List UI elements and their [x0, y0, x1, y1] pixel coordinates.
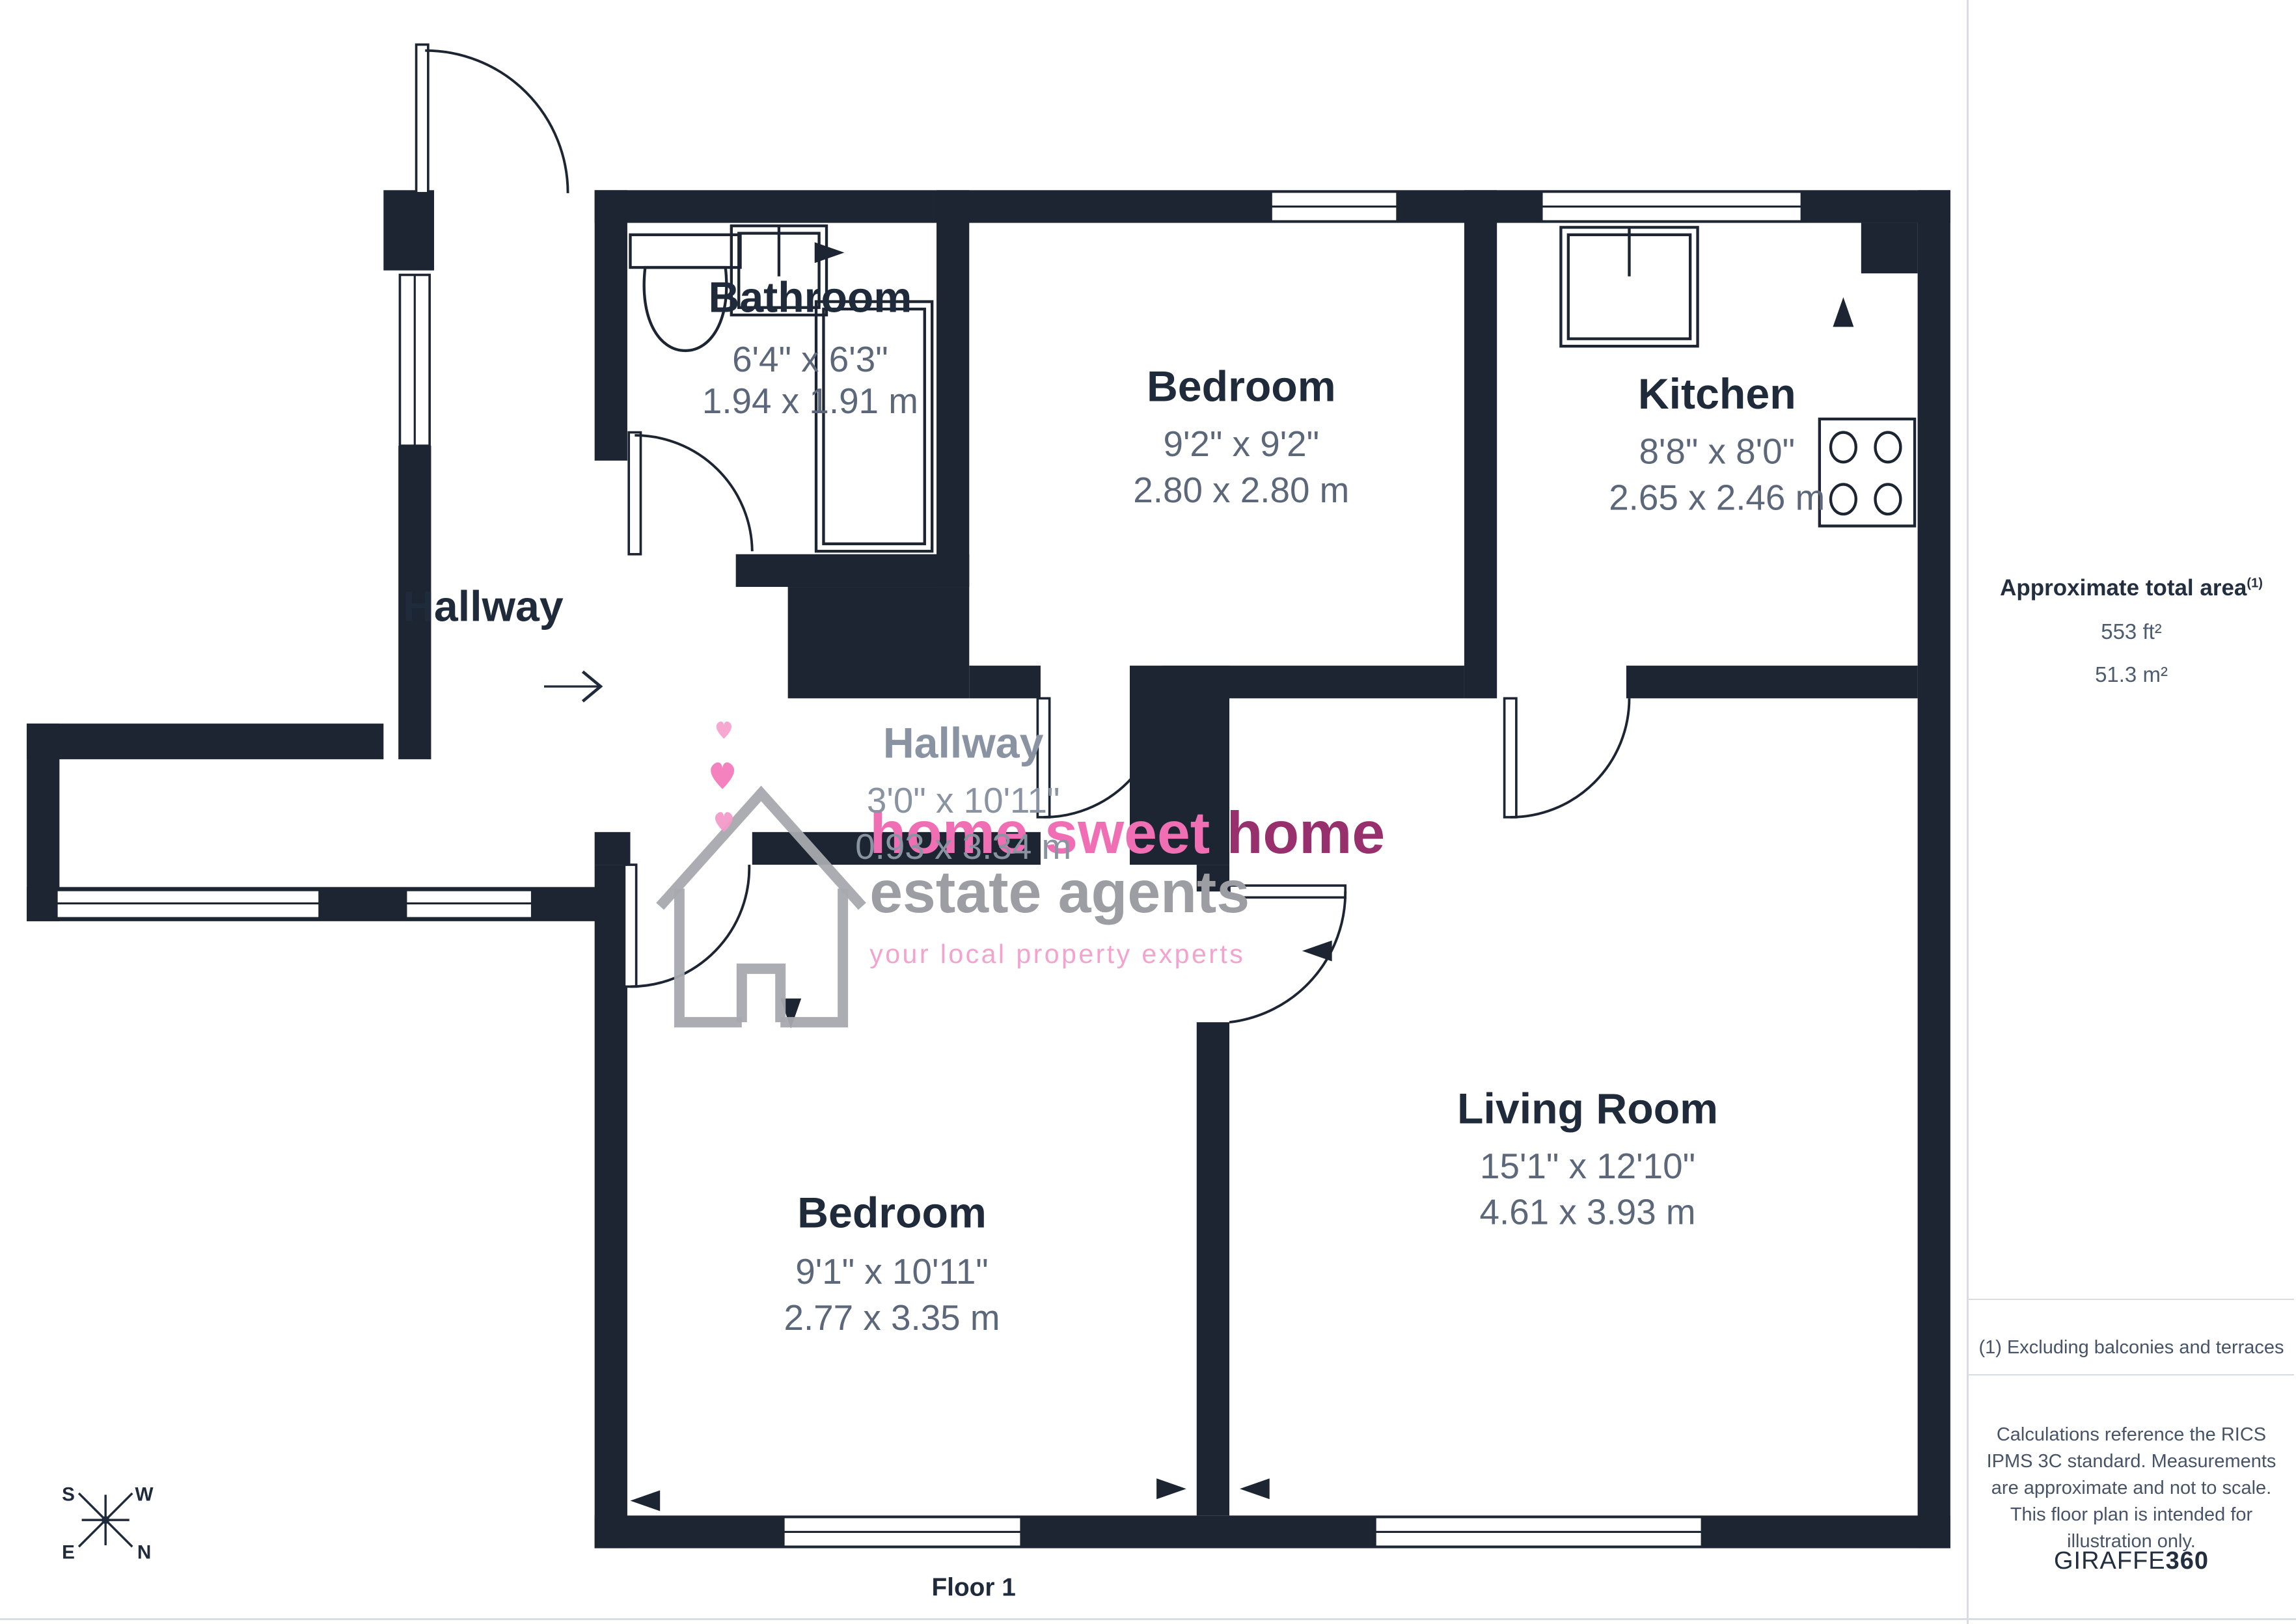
room-bedroom-bottom: Bedroom 9'1" x 10'11" 2.77 x 3.35 m	[784, 1189, 1000, 1338]
compass-e: E	[62, 1542, 75, 1563]
window-icon	[406, 890, 532, 918]
window-icon	[1375, 1517, 1702, 1547]
floorplan-page: home sweet home estate agents your local…	[0, 0, 2296, 1624]
compass-n: N	[137, 1542, 151, 1563]
room-hallway-inner: Hallway 3'0" x 10'11" 0.93 x 3.34 m	[855, 720, 1071, 867]
window-icon	[784, 1517, 1021, 1547]
bedroom-top-dims-metric: 2.80 x 2.80 m	[1133, 470, 1349, 510]
marker-up-icon	[1833, 297, 1853, 327]
kitchen-dims-imperial: 8'8" x 8'0"	[1639, 431, 1795, 471]
area-footnote-ref: (1)	[2247, 576, 2262, 590]
hallway-inner-label: Hallway	[883, 720, 1044, 768]
bedroom-top-dims-imperial: 9'2" x 9'2"	[1164, 424, 1320, 464]
bedroom-top-label: Bedroom	[1147, 363, 1336, 411]
living-room-dims-imperial: 15'1" x 12'10"	[1480, 1146, 1695, 1186]
living-room-label: Living Room	[1457, 1085, 1718, 1133]
compass-rose: S W E N	[62, 1483, 153, 1563]
kitchen-label: Kitchen	[1638, 370, 1796, 418]
marker-right-icon	[815, 242, 845, 263]
window-icon	[400, 275, 430, 446]
disclaimer-text: Calculations reference the RICS IPMS 3C …	[1983, 1422, 2280, 1555]
divider	[1969, 1299, 2294, 1300]
room-hallway-entrance: Hallway	[403, 583, 564, 631]
giraffe360-logo: GIRAFFE360	[1969, 1547, 2294, 1575]
marker-left-icon	[1240, 1478, 1270, 1499]
info-sidebar: Approximate total area(1) 553 ft² 51.3 m…	[1967, 0, 2294, 1624]
window-icon	[1271, 192, 1397, 222]
kitchen-sink-icon	[1561, 227, 1697, 346]
floor-label: Floor 1	[931, 1574, 1015, 1602]
room-bathroom: Bathroom 6'4" x 6'3" 1.94 x 1.91 m	[702, 274, 918, 421]
bedroom-bottom-dims-imperial: 9'1" x 10'11"	[795, 1251, 989, 1292]
floorplan-canvas: home sweet home estate agents your local…	[0, 0, 1967, 1624]
stove-icon	[1820, 419, 1915, 526]
window-icon	[57, 890, 320, 918]
compass-s: S	[62, 1483, 75, 1505]
room-living: Living Room 15'1" x 12'10" 4.61 x 3.93 m	[1457, 1085, 1718, 1232]
kitchen-door-icon	[1505, 698, 1630, 817]
marker-right-icon	[1156, 1478, 1186, 1499]
page-bottom-rule	[0, 1618, 2296, 1620]
hallway-inner-dims-imperial: 3'0" x 10'11"	[867, 780, 1060, 820]
giraffe360-suffix: 360	[2166, 1547, 2209, 1575]
divider	[1969, 1374, 2294, 1375]
footnote-text: (1) Excluding balconies and terraces	[1969, 1337, 2294, 1359]
entrance-arrow-icon	[544, 671, 601, 701]
bedroom-bottom-label: Bedroom	[797, 1189, 987, 1237]
total-area-m: 51.3 m²	[1969, 662, 2294, 687]
entrance-door-icon	[417, 45, 568, 193]
bathroom-dims-metric: 1.94 x 1.91 m	[702, 381, 918, 421]
kitchen-dims-metric: 2.65 x 2.46 m	[1609, 477, 1825, 517]
house-logo-icon	[660, 793, 862, 1022]
hallway-entrance-label: Hallway	[403, 583, 564, 631]
bathroom-label: Bathroom	[709, 274, 912, 322]
bathroom-dims-imperial: 6'4" x 6'3"	[732, 339, 888, 379]
compass-w: W	[135, 1483, 154, 1505]
hearts-icon	[711, 722, 734, 832]
giraffe360-name: GIRAFFE	[2054, 1547, 2166, 1575]
total-area-ft: 553 ft²	[1969, 619, 2294, 644]
total-area-title: Approximate total area(1)	[1969, 575, 2294, 601]
window-icon	[1542, 192, 1802, 222]
hallway-inner-dims-metric: 0.93 x 3.34 m	[855, 826, 1071, 867]
living-room-dims-metric: 4.61 x 3.93 m	[1479, 1192, 1695, 1232]
bedroom-bottom-dims-metric: 2.77 x 3.35 m	[784, 1297, 1000, 1338]
watermark-line2: estate agents	[869, 859, 1250, 925]
marker-left-icon	[1302, 941, 1332, 962]
bathroom-door-icon	[629, 433, 752, 554]
marker-left-icon	[631, 1490, 661, 1511]
room-bedroom-top: Bedroom 9'2" x 9'2" 2.80 x 2.80 m	[1133, 363, 1349, 510]
total-area-block: Approximate total area(1) 553 ft² 51.3 m…	[1969, 575, 2294, 687]
watermark-tagline: your local property experts	[869, 939, 1245, 969]
room-kitchen: Kitchen 8'8" x 8'0" 2.65 x 2.46 m	[1609, 370, 1825, 517]
